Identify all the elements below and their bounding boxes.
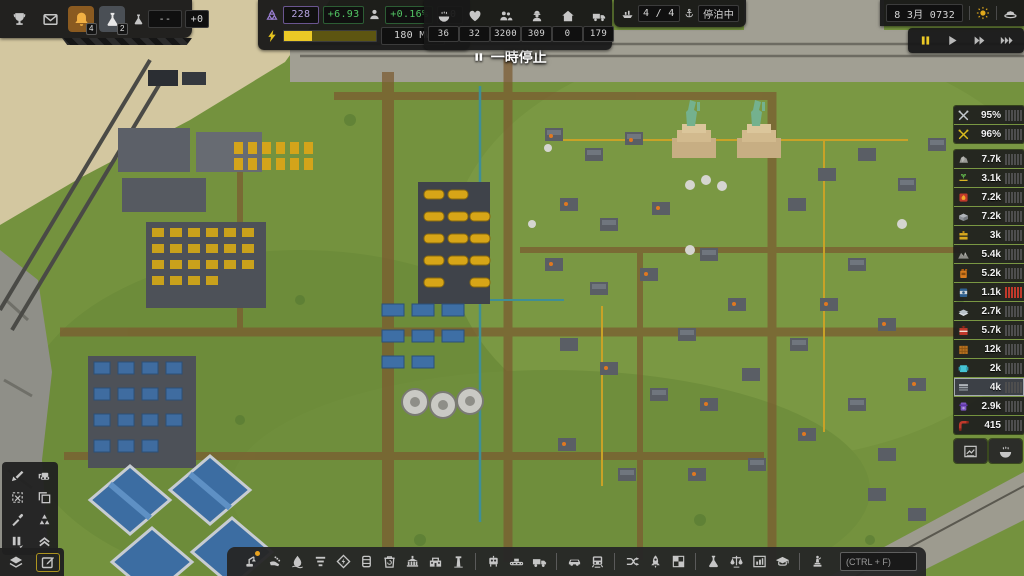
- resource-bar: [1005, 154, 1022, 165]
- resource-row-wood[interactable]: 12k: [954, 340, 1024, 358]
- resource-value: 2.7k: [971, 306, 1004, 317]
- captain-hat-icon[interactable]: [1003, 6, 1018, 21]
- unity-value: 228: [283, 6, 319, 24]
- trucks-button[interactable]: [528, 550, 550, 573]
- people-icon: [499, 9, 513, 23]
- resource-value: 4k: [971, 382, 1004, 393]
- ship-slots: 4 / 4: [638, 5, 680, 22]
- teal-part-icon: [957, 362, 970, 375]
- toolbar-divider: [799, 553, 800, 570]
- resource-list: 7.7k3.1k7.2k7.2k3k5.4k5.2k1.1k2.7k5.7k12…: [954, 150, 1024, 434]
- truck-icon: [592, 9, 606, 23]
- research-queue[interactable]: -- +0: [132, 10, 209, 28]
- resources-footer: [954, 439, 1024, 463]
- edit-icon: [40, 554, 56, 570]
- power-diamond-icon: [336, 554, 351, 569]
- resource-value: 2k: [971, 363, 1004, 374]
- notifications-badge: 4: [86, 23, 97, 35]
- resource-bar: [1005, 110, 1022, 121]
- person-icon: [368, 8, 381, 21]
- messages-button[interactable]: [37, 6, 63, 32]
- resource-bar: [1005, 306, 1022, 317]
- crane-icon: [244, 554, 259, 569]
- stat-workers-value: 309: [521, 26, 552, 42]
- stat-population[interactable]: 3200: [490, 9, 521, 42]
- fff-icon: [1000, 34, 1013, 47]
- clock-panel: 8 3月 0732: [880, 0, 1024, 26]
- sun-icon: [976, 6, 990, 20]
- play-icon: [946, 34, 959, 47]
- sorting-button[interactable]: [309, 550, 331, 573]
- trash-icon: [382, 554, 397, 569]
- tower-icon: [451, 554, 466, 569]
- resource-row-maintenance-t1[interactable]: 95%: [954, 106, 1024, 124]
- capitol-icon: [405, 554, 420, 569]
- power-button[interactable]: [332, 550, 354, 573]
- checkered-icon: [671, 554, 686, 569]
- bowl-icon: [437, 9, 451, 23]
- resource-bar: [1005, 287, 1022, 298]
- recycle-tool-button[interactable]: [32, 510, 56, 529]
- cut-icon: [10, 490, 25, 505]
- resource-value: 5.4k: [971, 249, 1004, 260]
- truck-icon: [532, 554, 547, 569]
- ship-icon: [621, 6, 634, 22]
- resource-row-red-crate[interactable]: 5.7k: [954, 321, 1024, 339]
- monitors-button[interactable]: [748, 550, 770, 573]
- divider: [969, 6, 970, 20]
- resource-value: 1.1k: [971, 287, 1004, 298]
- hand-pour-icon: [267, 554, 282, 569]
- stat-homeless-value: 0: [552, 26, 583, 42]
- liquid-storage-button[interactable]: [355, 550, 377, 573]
- pause-icon: [473, 51, 485, 63]
- resource-bar: [1005, 401, 1022, 412]
- resource-row-fuel-canister[interactable]: 5.2k: [954, 264, 1024, 282]
- left-palette-footer: [0, 548, 64, 576]
- resource-value: 7.2k: [971, 211, 1004, 222]
- stat-food-value: 36: [428, 26, 459, 42]
- toolbar-divider: [695, 553, 696, 570]
- rocket-icon: [648, 554, 663, 569]
- housing-button[interactable]: [424, 550, 446, 573]
- stat-population-value: 3200: [490, 26, 521, 42]
- resource-value: 7.2k: [971, 192, 1004, 203]
- train-icon: [590, 554, 605, 569]
- resource-bar: [1005, 325, 1022, 336]
- resource-bar: [1005, 363, 1022, 374]
- toolbar-group-0: [236, 550, 473, 573]
- pipette-icon: [10, 512, 25, 527]
- resource-row-rubble[interactable]: 5.4k: [954, 245, 1024, 263]
- town-buildings-button[interactable]: [401, 550, 423, 573]
- resource-row-electronics[interactable]: 2.9k: [954, 397, 1024, 415]
- build-toolbar-groups: [236, 550, 832, 573]
- purple-part-icon: [957, 400, 970, 413]
- laboratories-button[interactable]: [702, 550, 724, 573]
- resource-value: 96%: [971, 129, 1004, 140]
- education-button[interactable]: [771, 550, 793, 573]
- stat-vehicles-value: 179: [583, 26, 614, 42]
- date-display: 8 3月 0732: [886, 4, 963, 22]
- toolbar-group-3: [617, 550, 693, 573]
- car-icon: [567, 554, 582, 569]
- statue-icon: [810, 554, 825, 569]
- fast-forward-button[interactable]: [968, 31, 992, 50]
- vehicles-button[interactable]: [563, 550, 585, 573]
- pause-banner-label: 一時停止: [491, 47, 547, 67]
- resource-value: 5.2k: [971, 268, 1004, 279]
- school-icon: [428, 554, 443, 569]
- toolbar-group-5: [802, 550, 832, 573]
- resource-row-yellow-crate[interactable]: 3k: [954, 226, 1024, 244]
- toolbar-group-1: [478, 550, 554, 573]
- flask-icon: [706, 554, 721, 569]
- resource-bar: [1005, 249, 1022, 260]
- resources-panel: 95%96% 7.7k3.1k7.2k7.2k3k5.4k5.2k1.1k2.7…: [954, 106, 1024, 463]
- notification-dot: [255, 551, 260, 556]
- unity-icon: [265, 8, 279, 22]
- pause-button[interactable]: [914, 31, 938, 50]
- tools-icon: [957, 128, 970, 141]
- machines-button[interactable]: [482, 550, 504, 573]
- dumping-button[interactable]: [263, 550, 285, 573]
- stat-food[interactable]: 36: [428, 9, 459, 42]
- steel-sheets-icon: [957, 381, 970, 394]
- cut-tool-button[interactable]: [5, 488, 29, 507]
- toolbar-divider: [475, 553, 476, 570]
- dozer-icon: [37, 468, 52, 483]
- tools-icon: [957, 109, 970, 122]
- research-progress-delta: +0: [185, 10, 209, 28]
- resource-row-pipe-parts[interactable]: 415: [954, 416, 1024, 434]
- resource-bar: [1005, 344, 1022, 355]
- yellow-crate-icon: [957, 229, 970, 242]
- pick-tool-button[interactable]: [5, 510, 29, 529]
- resource-value: 95%: [971, 110, 1004, 121]
- pause-banner: 一時停止: [473, 47, 547, 67]
- resource-bar: [1005, 173, 1022, 184]
- research-button[interactable]: 2: [99, 6, 125, 32]
- hazard-stripe: [62, 38, 192, 45]
- statistics-button[interactable]: [954, 439, 987, 463]
- pause-tool-icon: [10, 534, 25, 549]
- resource-bar: [1005, 420, 1022, 431]
- search-input[interactable]: [840, 552, 917, 571]
- resource-value: 415: [971, 420, 1004, 431]
- blueprint-tool-button[interactable]: [36, 553, 60, 572]
- blue-barrel-icon: [957, 286, 970, 299]
- resource-bar: [1005, 129, 1022, 140]
- heart-icon: [468, 9, 482, 23]
- toolbar-divider: [556, 553, 557, 570]
- layers-tool-button[interactable]: [4, 553, 28, 572]
- layers-icon: [8, 554, 24, 570]
- achievements-button[interactable]: [6, 6, 32, 32]
- water-button[interactable]: [286, 550, 308, 573]
- toolbar-group-4: [698, 550, 797, 573]
- stat-workers[interactable]: 309: [521, 9, 552, 42]
- fastest-forward-button[interactable]: [995, 31, 1019, 50]
- bowl-icon: [998, 444, 1013, 459]
- sheet-icon: [957, 305, 970, 318]
- resource-bar: [1005, 211, 1022, 222]
- resource-row-blue-barrel[interactable]: 1.1k: [954, 283, 1024, 301]
- stat-health[interactable]: 32: [459, 9, 490, 42]
- excavation-button[interactable]: [240, 550, 262, 573]
- screen: 一時停止 42 -- +0 228 +6.93 +0.16% +0 180 MW…: [0, 0, 1024, 576]
- resource-value: 7.7k: [971, 154, 1004, 165]
- decals-button[interactable]: [667, 550, 689, 573]
- trains-button[interactable]: [586, 550, 608, 573]
- trade-button[interactable]: [725, 550, 747, 573]
- monuments-button[interactable]: [806, 550, 828, 573]
- chart-window-icon: [752, 554, 767, 569]
- cap-icon: [775, 554, 790, 569]
- stat-vehicles[interactable]: 179: [583, 9, 614, 42]
- power-bar: [283, 30, 377, 42]
- resource-bar: [1005, 382, 1022, 393]
- resource-value: 2.9k: [971, 401, 1004, 412]
- research-progress-value: --: [148, 10, 182, 28]
- trowel-icon: [10, 468, 25, 483]
- resource-row-coal[interactable]: 7.2k: [954, 188, 1024, 206]
- copy-tool-button[interactable]: [32, 488, 56, 507]
- scales-icon: [729, 554, 744, 569]
- build-toolbar: [227, 547, 926, 576]
- rock-icon: [957, 153, 970, 166]
- rubble-icon: [957, 248, 970, 261]
- robot-icon: [486, 554, 501, 569]
- chevrons-up-icon: [37, 534, 52, 549]
- rockets-button[interactable]: [644, 550, 666, 573]
- resource-value: 12k: [971, 344, 1004, 355]
- worker-icon: [530, 9, 544, 23]
- red-pipe-icon: [957, 419, 970, 432]
- drop-icon: [290, 554, 305, 569]
- terrain-tool-button[interactable]: [5, 466, 29, 485]
- ff-icon: [973, 34, 986, 47]
- waste-button[interactable]: [378, 550, 400, 573]
- towers-button[interactable]: [447, 550, 469, 573]
- resource-row-teal-part[interactable]: 2k: [954, 359, 1024, 377]
- divider: [996, 6, 997, 20]
- recycle-tool-icon: [37, 512, 52, 527]
- notifications-button[interactable]: 4: [68, 6, 94, 32]
- filter-stack-icon: [313, 554, 328, 569]
- pause-icon: [919, 34, 932, 47]
- maintenance-group: 95%96%: [954, 106, 1024, 143]
- research-badge: 2: [117, 23, 128, 35]
- canister-icon: [957, 267, 970, 280]
- resource-bar: [1005, 268, 1022, 279]
- resource-bar: [1005, 230, 1022, 241]
- ship-status: 停泊中: [698, 5, 739, 22]
- top-left-buttons: 42: [6, 6, 125, 32]
- balancer-icon: [625, 554, 640, 569]
- consumption-button[interactable]: [989, 439, 1022, 463]
- resource-row-maintenance-t2[interactable]: 96%: [954, 125, 1024, 143]
- brick-icon: [957, 210, 970, 223]
- copy-icon: [37, 490, 52, 505]
- toolbar-group-2: [559, 550, 612, 573]
- resource-row-steel-sheets[interactable]: 4k: [954, 378, 1024, 396]
- bulldoze-tool-button[interactable]: [32, 466, 56, 485]
- flask-icon: [132, 13, 145, 26]
- left-tool-palette: [2, 462, 58, 555]
- resource-row-concrete-slab[interactable]: 7.2k: [954, 207, 1024, 225]
- bolt-icon: [265, 29, 279, 43]
- red-crate-icon: [957, 324, 970, 337]
- stat-homeless[interactable]: 0: [552, 9, 583, 42]
- crop-crate-icon: [957, 172, 970, 185]
- trophy-icon: [11, 11, 28, 28]
- top-left-toolbar: 42 -- +0: [0, 0, 192, 38]
- resource-row-glass-sheet[interactable]: 2.7k: [954, 302, 1024, 320]
- game-map-viewport[interactable]: [0, 0, 1024, 576]
- toolbar-divider: [614, 553, 615, 570]
- resource-row-crops[interactable]: 3.1k: [954, 169, 1024, 187]
- stat-health-value: 32: [459, 26, 490, 42]
- transports-button[interactable]: [505, 550, 527, 573]
- wood-box-icon: [957, 343, 970, 356]
- resource-bar: [1005, 192, 1022, 203]
- barrel-icon: [359, 554, 374, 569]
- house-icon: [561, 9, 575, 23]
- resource-value: 5.7k: [971, 325, 1004, 336]
- colony-stats-panel: 363232003090179: [424, 0, 612, 50]
- resource-value: 3.1k: [971, 173, 1004, 184]
- mail-icon: [42, 11, 59, 28]
- unity-delta: +6.93: [323, 6, 365, 24]
- chart-line-icon: [963, 444, 978, 459]
- shipyard-panel[interactable]: 4 / 4 停泊中: [614, 0, 746, 27]
- resource-value: 3k: [971, 230, 1004, 241]
- anchor-icon: [684, 7, 695, 20]
- balancers-button[interactable]: [621, 550, 643, 573]
- conveyor-icon: [509, 554, 524, 569]
- resource-row-rock[interactable]: 7.7k: [954, 150, 1024, 168]
- play-button[interactable]: [941, 31, 965, 50]
- coal-icon: [957, 191, 970, 204]
- speed-controls: [908, 28, 1024, 53]
- power-bar-fill: [284, 31, 312, 41]
